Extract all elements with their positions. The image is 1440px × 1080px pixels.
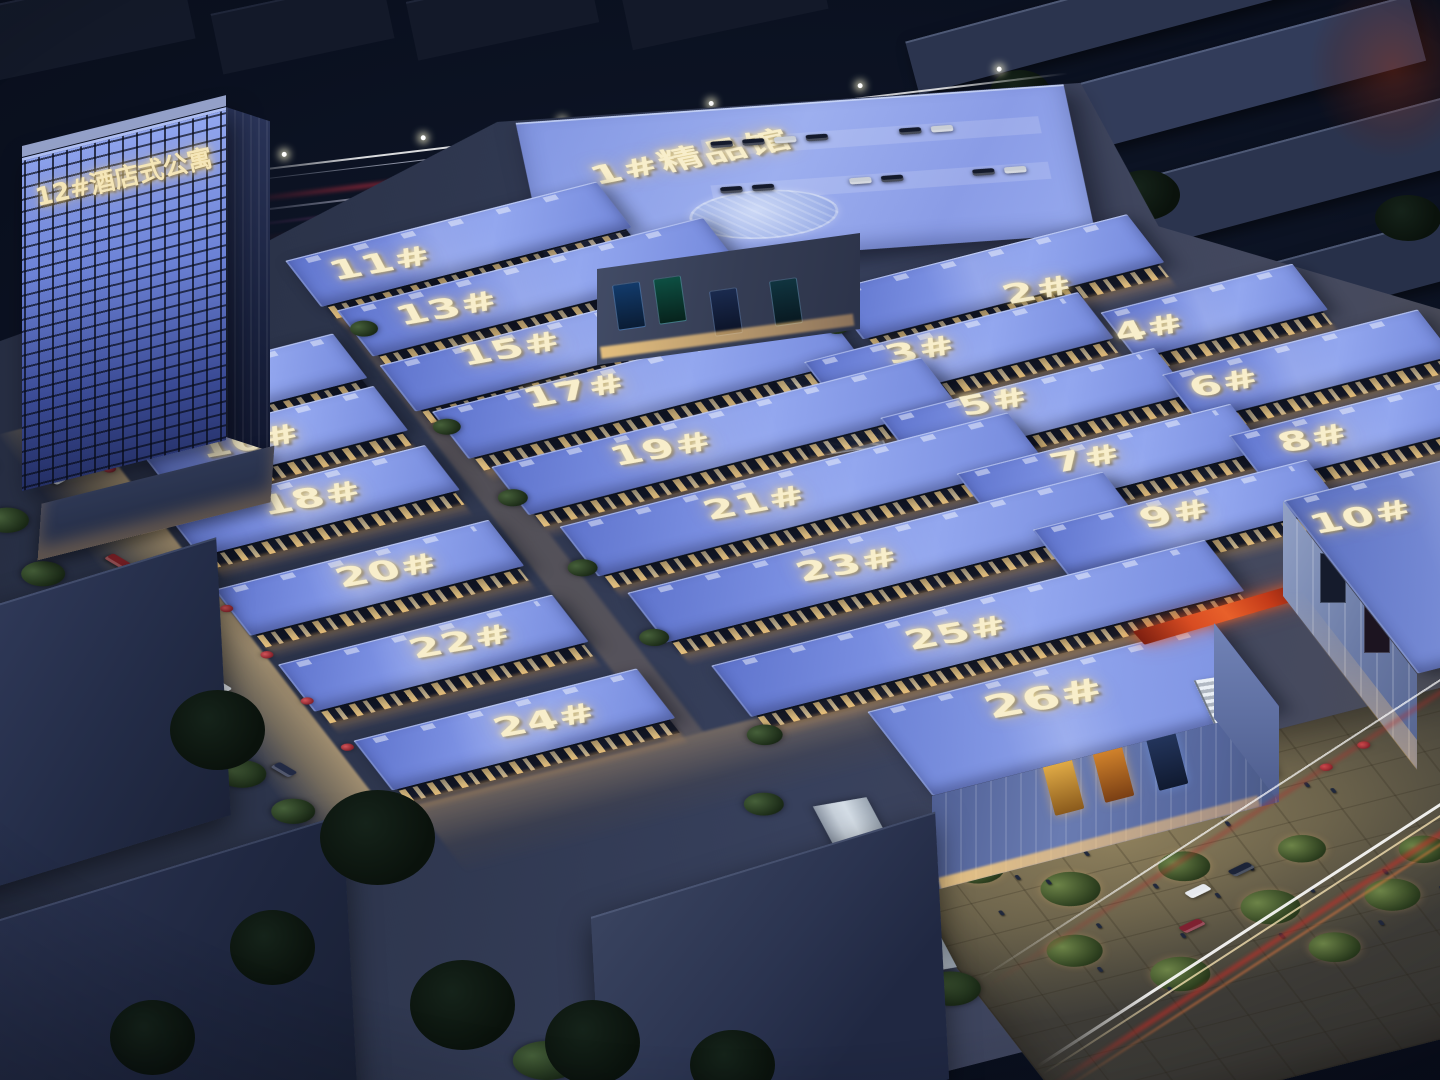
streetlight <box>857 83 863 89</box>
night-aerial-rendering: 1#精品馆 11#13#14#15#16#2#17#18#3#4#19#5#20… <box>0 0 1440 1080</box>
billboard-screen <box>612 281 646 330</box>
background-building <box>621 0 828 50</box>
tree <box>545 1000 640 1080</box>
building-12-tower: 12#酒店式公寓 <box>0 46 300 506</box>
billboard-screen <box>769 277 803 326</box>
tree <box>230 910 315 985</box>
streetlight <box>996 66 1002 72</box>
tree <box>170 690 265 770</box>
tree <box>110 1000 195 1075</box>
background-building <box>406 0 599 61</box>
tree <box>320 790 435 885</box>
building-roof-label: 1#精品馆 <box>585 126 797 189</box>
streetlight <box>420 135 426 141</box>
tree <box>410 960 515 1050</box>
streetlight <box>708 101 714 107</box>
billboard-screen <box>653 275 687 324</box>
